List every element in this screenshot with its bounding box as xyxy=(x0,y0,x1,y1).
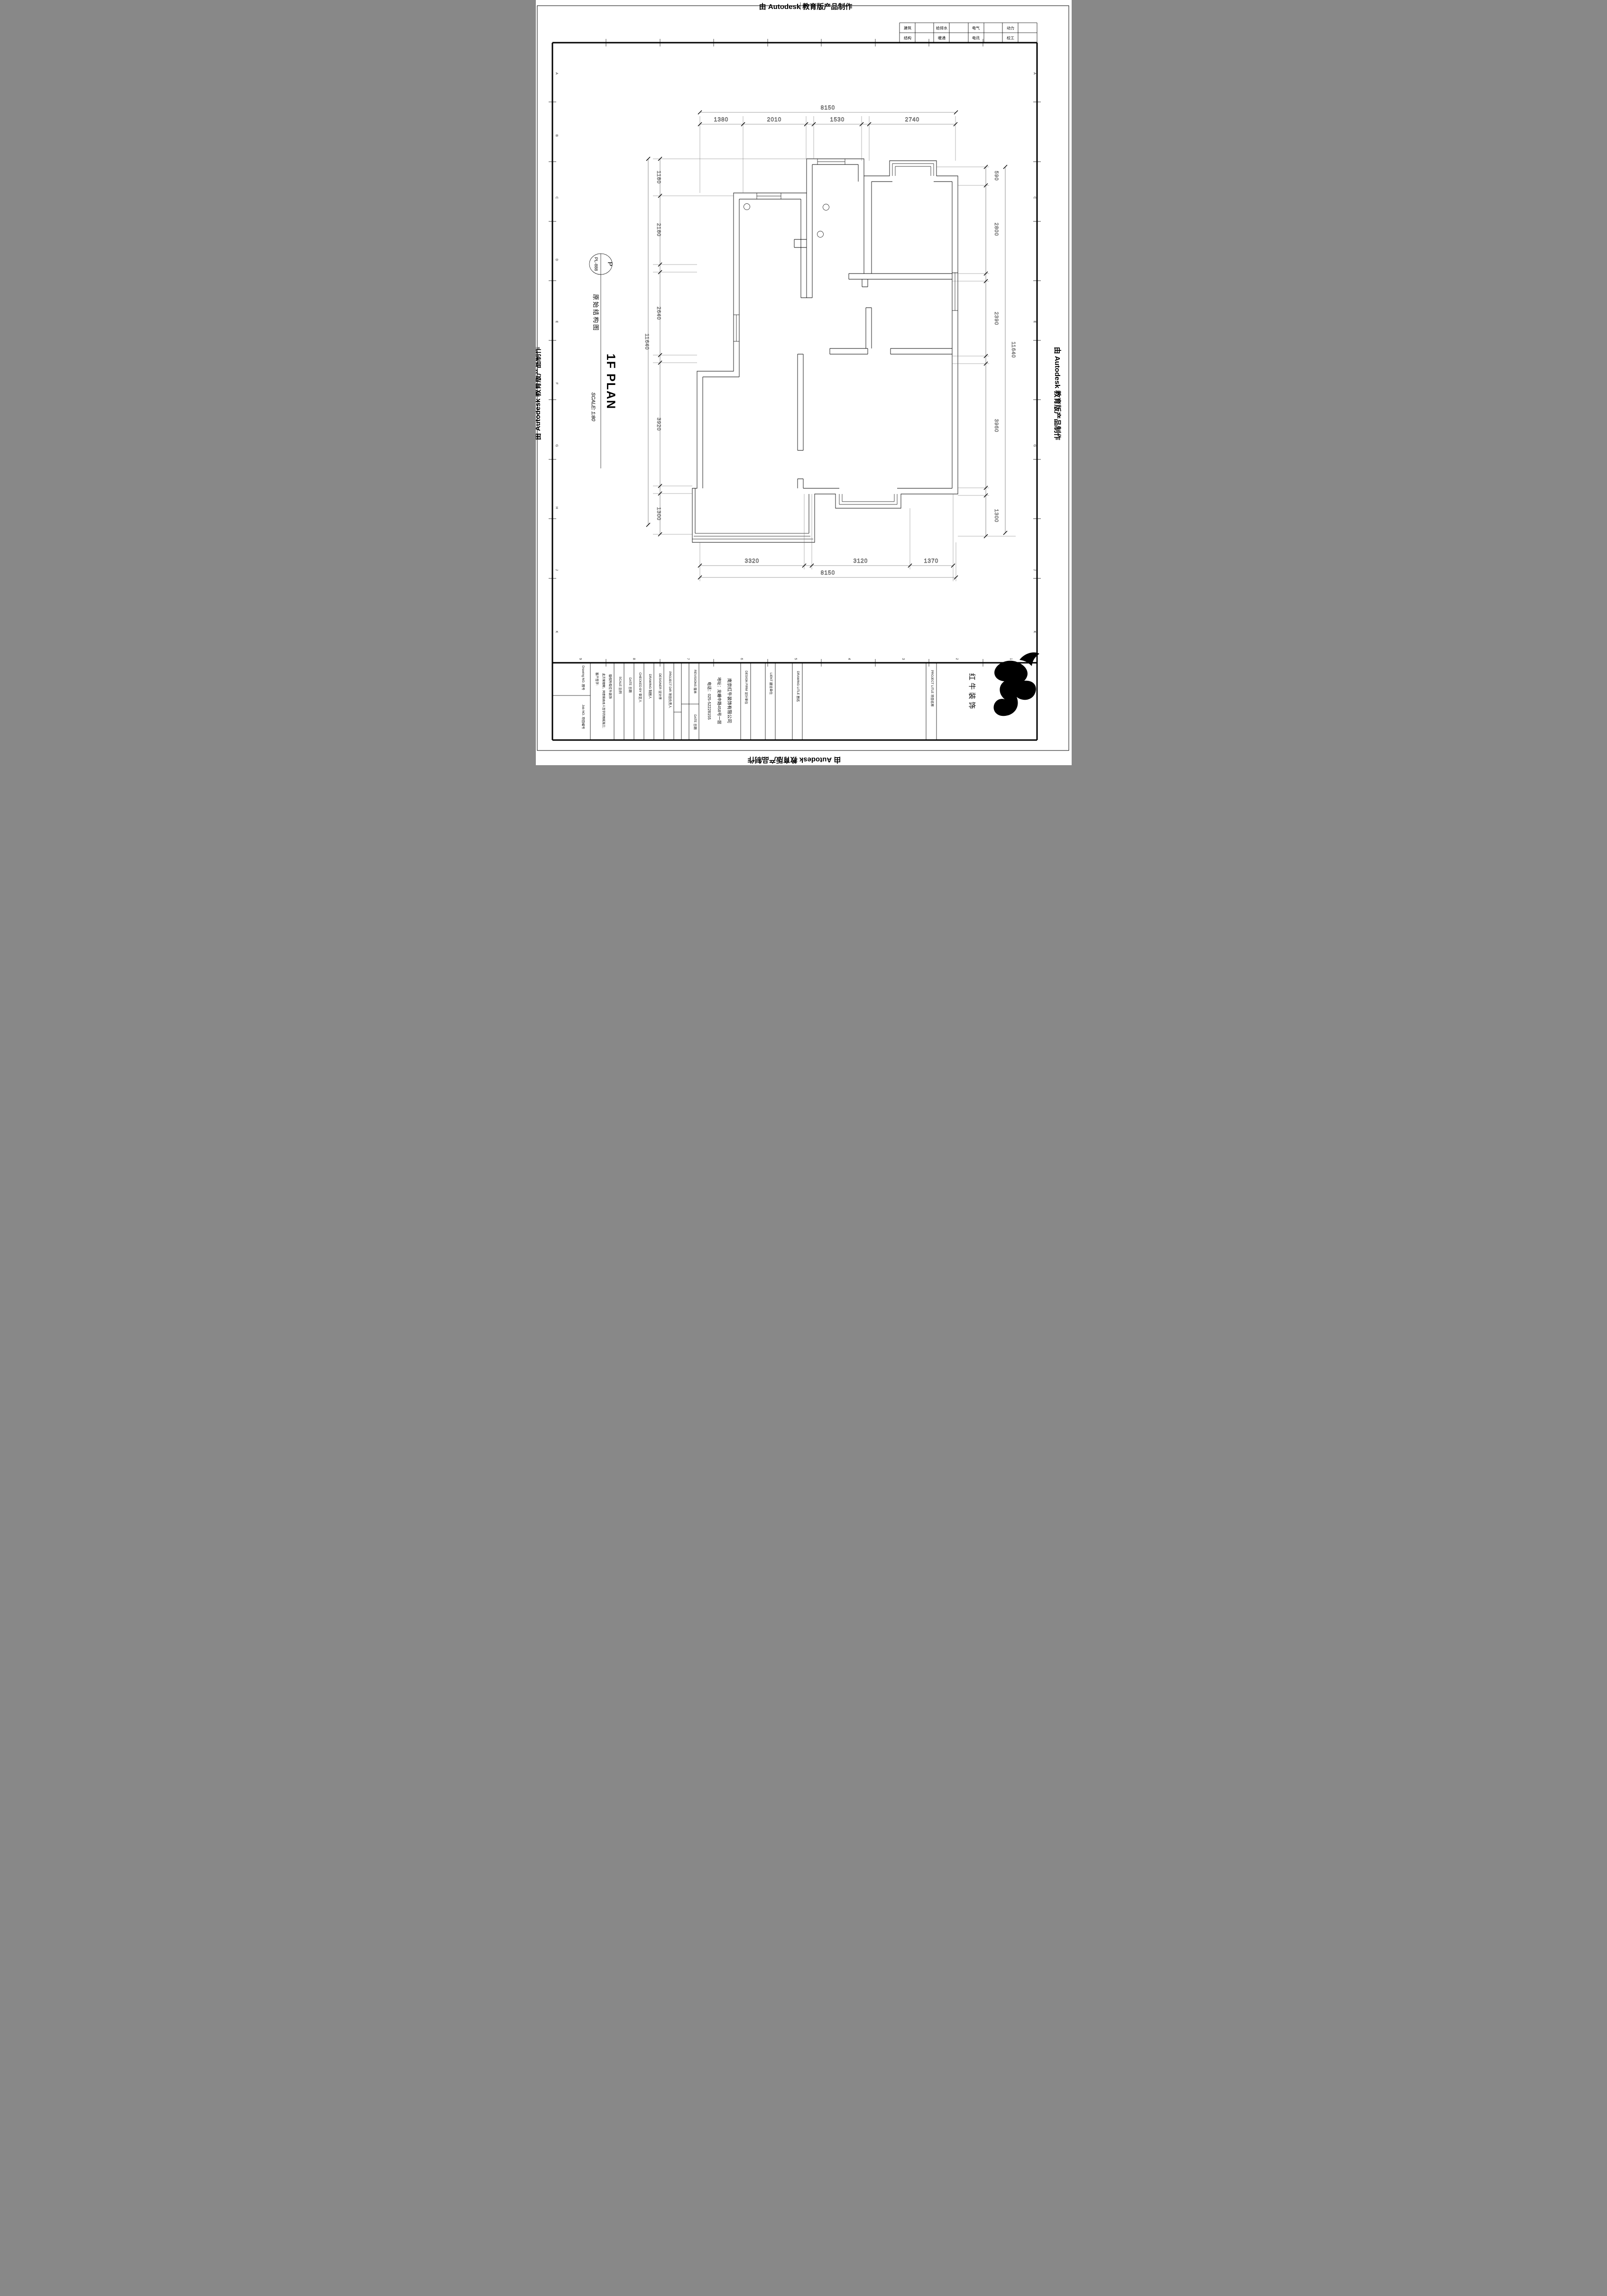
dim-right-overall: 11640 xyxy=(1010,342,1016,358)
grid-col-label: 7 xyxy=(686,658,689,660)
grid-row-label: G xyxy=(555,444,558,447)
exterior-walls xyxy=(692,159,958,542)
bay-window-top xyxy=(892,164,934,176)
plot-stamp-left: 由 Autodesk 教育版产品制作 xyxy=(536,347,542,440)
grid-row-label: K xyxy=(1033,631,1036,633)
bull-logo-icon xyxy=(993,652,1039,716)
grid-row-label: H xyxy=(555,506,558,509)
grid-col-label: 5 xyxy=(794,658,797,660)
drawing-no-label: Drawing NO. 图号 xyxy=(581,666,585,691)
bay-window-bottom xyxy=(839,494,897,504)
grid-col-label: 1 xyxy=(1009,658,1012,660)
drawing-canvas: A B C D E F G H J K A C E G J K 9 8 7 6 … xyxy=(536,0,1072,765)
grid-row-label: J xyxy=(1033,569,1036,571)
client-label: LIENT 建设单位 xyxy=(769,673,773,695)
dim-right-seg: 2390 xyxy=(993,312,999,325)
detail-letter: P xyxy=(606,262,614,266)
grid-col-label: 6 xyxy=(740,658,743,660)
dim-left-seg: 2180 xyxy=(656,223,661,237)
grid-row-label: K xyxy=(555,631,558,633)
company-phone: 电话：025-52228155 xyxy=(707,682,712,720)
dim-bottom-overall: 8150 xyxy=(820,569,835,576)
discipline-cell: 给排水 xyxy=(936,26,947,30)
floor-plan xyxy=(692,159,958,542)
grid-row-label: G xyxy=(1033,444,1036,447)
revision-date-label: DATE 日期 xyxy=(693,714,697,730)
grid-row-labels-left: A B C D E F G H J K xyxy=(555,73,558,633)
discipline-cell: 结构 xyxy=(904,36,911,40)
dim-bottom-seg: 3320 xyxy=(744,558,759,564)
discipline-cell: 电讯 xyxy=(972,36,980,40)
grid-row-label: A xyxy=(555,73,558,75)
dim-left-seg: 1300 xyxy=(656,507,661,521)
discipline-cell: 电气 xyxy=(972,26,980,30)
plot-stamp-bottom: 由 Autodesk 教育版产品制作 xyxy=(747,756,841,764)
drawing-title-en: 1F PLAN xyxy=(604,354,617,410)
discipline-cell: 校工 xyxy=(1007,36,1014,40)
title-block: Drawing NO. 图号 Job NO. 项目编号 版权所有红牛装饰 此方案… xyxy=(552,652,1039,740)
company-name: 南京红牛装饰有限公司 xyxy=(726,678,732,723)
riser-circle xyxy=(817,231,823,238)
discipline-cell: 动力 xyxy=(1007,26,1014,30)
drawing-title-label: DRAWING LITLE 图名 xyxy=(796,671,800,702)
sheet-number: PL-888 xyxy=(594,257,598,271)
designer-label: DESIGNER 设计师 xyxy=(658,673,662,700)
plot-stamp-top: 由 Autodesk 教育版产品制作 xyxy=(759,2,852,11)
dim-bottom-seg: 1370 xyxy=(924,558,938,564)
discipline-table: 建筑 给排水 电气 动力 结构 暖通 电讯 校工 xyxy=(900,23,1037,43)
copyright-line1: 版权所有红牛装饰 xyxy=(608,674,613,699)
grid-row-label: J xyxy=(555,569,558,571)
dim-bottom-seg: 3120 xyxy=(853,558,868,564)
scale-label: SCALE 比例 xyxy=(618,677,623,694)
grid-row-label: B xyxy=(555,135,558,137)
dim-left-overall: 11640 xyxy=(644,334,650,350)
grid-ticks xyxy=(549,39,1041,667)
dim-right-seg: 2800 xyxy=(993,223,999,236)
grid-row-label: D xyxy=(555,258,558,261)
inner-frame xyxy=(552,43,1037,740)
grid-col-label: 3 xyxy=(901,658,905,660)
grid-row-label: A xyxy=(1033,73,1036,75)
drawing-by-label: DRAWING 制图人 xyxy=(648,674,652,699)
dim-left-seg: 1180 xyxy=(656,171,661,184)
grid-row-label: C xyxy=(1033,196,1036,199)
grid-row-label: C xyxy=(555,196,558,199)
dimension-annotations: 8150 1380 2010 1530 2740 3320 3120 1370 … xyxy=(644,104,1016,581)
grid-col-label: 9 xyxy=(579,658,582,660)
logo-text: 红牛装饰 xyxy=(968,673,976,711)
plot-stamp-right: 由 Autodesk 教育版产品制作 xyxy=(1053,347,1062,440)
grid-col-labels: 9 8 7 6 5 4 3 2 1 xyxy=(579,658,1012,660)
cad-sheet: A B C D E F G H J K A C E G J K 9 8 7 6 … xyxy=(536,0,1072,765)
dim-top-seg: 2010 xyxy=(767,116,781,123)
grid-row-label: E xyxy=(1033,321,1036,323)
dim-right-seg: 590 xyxy=(993,171,999,181)
dim-top-seg: 2740 xyxy=(905,116,919,123)
dim-left-seg: 2640 xyxy=(656,307,661,320)
discipline-cell: 建筑 xyxy=(904,26,911,30)
grid-col-label: 8 xyxy=(632,658,635,660)
revisions-label: REVISIONS 版本 xyxy=(693,670,698,694)
riser-circle xyxy=(823,204,829,210)
grid-col-label: 4 xyxy=(847,658,851,660)
project-dir-label: PROJECT DIR 项目负责人 xyxy=(668,671,672,708)
dim-right-seg: 1300 xyxy=(993,509,999,522)
dim-top-seg: 1380 xyxy=(714,116,728,123)
company-logo: 红牛装饰 xyxy=(968,652,1039,716)
job-no-label: Job NO. 项目编号 xyxy=(581,704,586,729)
grid-row-label: E xyxy=(555,321,558,323)
drawing-title-cn: 原始结构图 xyxy=(592,294,599,332)
grid-row-labels-right: A C E G J K xyxy=(1033,73,1036,633)
dim-top-seg: 1530 xyxy=(830,116,845,123)
windows xyxy=(734,159,958,341)
balcony-railing xyxy=(692,533,813,539)
dim-top-overall: 8150 xyxy=(820,104,835,111)
riser-circle xyxy=(744,204,750,210)
checked-by-label: CHECKED BY 审定人 xyxy=(638,672,643,703)
grid-col-label: 2 xyxy=(955,658,958,660)
date-label: DATE 日期 xyxy=(628,677,632,693)
dim-right-seg: 3960 xyxy=(993,419,999,432)
project-title-label: PROJECT LITLE 项目名称 xyxy=(930,670,935,707)
client-signature-label: 客户签字: xyxy=(595,672,599,686)
scale-note: SCALE: 1:80 xyxy=(590,393,596,421)
design-firm-label: DESIGN FIRM 设计单位 xyxy=(744,671,749,704)
grid-row-label: F xyxy=(555,383,558,384)
discipline-cell: 暖通 xyxy=(938,36,946,40)
sheet-label-block: PL-888 P 原始结构图 1F PLAN SCALE: 1:80 xyxy=(589,254,617,468)
dim-left-seg: 3920 xyxy=(656,418,661,431)
copyright-line2: 此方案理解，同意按由本人签字的图纸施工; xyxy=(602,673,606,728)
company-address: 地址：龙蟠中路458号一层 xyxy=(717,677,722,724)
